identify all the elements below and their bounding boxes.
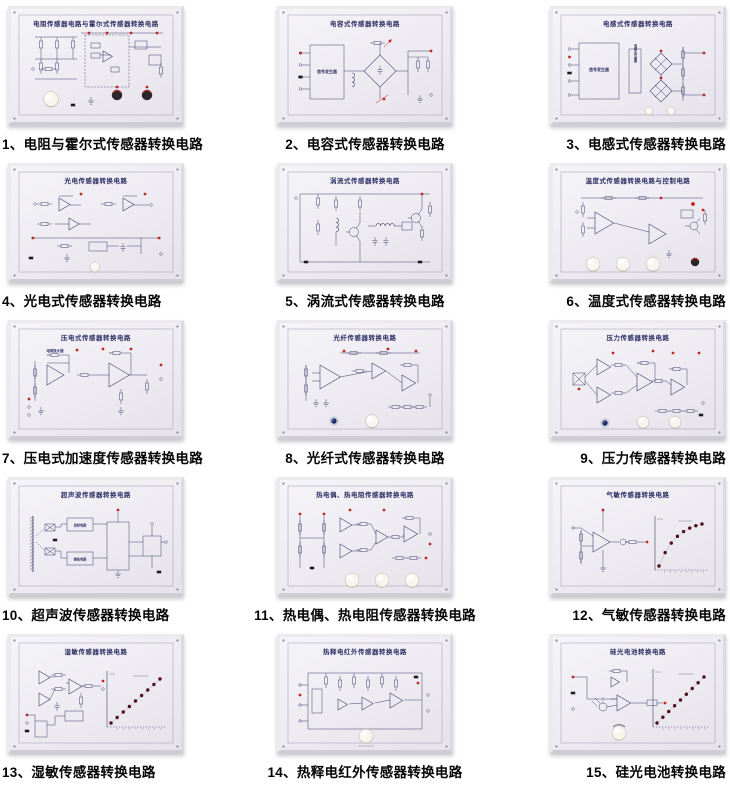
circuit-art: 气敏传感器转换电路 [553,480,723,593]
board-title: 硅光电池转换电路 [610,647,666,656]
circuit-board: 压电式传感器转换电路电荷放大器 [8,320,184,439]
panel-cell-14: 热释电红外传感器转换电路 14、热释电红外传感器转换电路 [243,634,487,791]
panel-caption: 15、硅光电池转换电路 [586,761,726,781]
circuit-art: 光电传感器转换电路 [11,166,181,279]
circuit-board: 硅光电池转换电路 [550,634,726,753]
circuit-board: 温度式传感器转换电路与控制电路 [550,163,726,282]
circuit-art: 硅光电池转换电路 [553,637,723,750]
panel-cell-11: 热电偶、热电阻传感器转换电路 11、热电偶、热电阻传感器转换电路 [243,477,487,634]
board-label: 接收电路 [73,557,88,562]
panel-caption: 5、涡流式传感器转换电路 [285,290,445,310]
panel-caption: 6、温度式传感器转换电路 [566,290,726,310]
panel-caption: 1、电阻与霍尔式传感器转换电路 [2,133,203,153]
board-title: 温度式传感器转换电路与控制电路 [586,176,691,185]
circuit-board: 光电传感器转换电路 [8,163,184,282]
circuit-board: 湿敏传感器转换电路 [8,634,184,753]
panel-cell-8: 光纤传感器转换电路 8、光纤式传感器转换电路 [243,320,487,477]
board-title: 热电偶、热电阻传感器转换电路 [316,490,414,499]
board-title: 光纤传感器转换电路 [333,333,397,342]
circuit-board: 热电偶、热电阻传感器转换电路 [277,477,453,596]
board-label: 发射电路 [73,523,88,528]
circuit-art: 热电偶、热电阻传感器转换电路 [280,480,450,593]
panel-caption: 10、超声波传感器转换电路 [2,604,169,624]
board-label: 信号发生器 [589,66,610,72]
board-title: 电阻传感器电路与霍尔式传感器转换电路 [33,19,159,28]
board-title: 压力传感器转换电路 [607,333,670,342]
circuit-art: 湿敏传感器转换电路 [11,637,181,750]
panel-grid: 电阻传感器电路与霍尔式传感器转换电路 1、电阻与霍尔式传感器转换电路 电容式传感… [0,0,730,791]
circuit-art: 超声波传感器转换电路发射电路接收电路 [11,480,181,593]
board-label: 电感式传感器 [633,42,638,62]
panel-cell-10: 超声波传感器转换电路发射电路接收电路 10、超声波传感器转换电路 [0,477,243,634]
circuit-board: 涡流式传感器转换电路 [277,163,453,282]
circuit-art: 热释电红外传感器转换电路 [280,637,450,750]
panel-caption: 7、压电式加速度传感器转换电路 [2,447,203,467]
panel-cell-9: 压力传感器转换电路 9、压力传感器转换电路 [487,320,730,477]
circuit-art: 电阻传感器电路与霍尔式传感器转换电路 [11,9,181,122]
panel-caption: 12、气敏传感器转换电路 [572,604,726,624]
circuit-art: 光纤传感器转换电路 [280,323,450,436]
board-title: 热释电红外传感器转换电路 [323,647,407,656]
board-title: 超声波传感器转换电路 [61,490,131,499]
circuit-board: 气敏传感器转换电路 [550,477,726,596]
board-title: 气敏传感器转换电路 [606,490,670,499]
circuit-art: 温度式传感器转换电路与控制电路 [553,166,723,279]
circuit-art: 压电式传感器转换电路电荷放大器 [11,323,181,436]
panel-caption: 14、热释电红外传感器转换电路 [267,761,462,781]
circuit-board: 超声波传感器转换电路发射电路接收电路 [8,477,184,596]
panel-caption: 2、电容式传感器转换电路 [285,133,445,153]
panel-cell-5: 涡流式传感器转换电路 5、涡流式传感器转换电路 [243,163,487,320]
board-title: 电感式传感器转换电路 [603,19,673,28]
circuit-board: 电感式传感器转换电路信号发生器电感式传感器 [550,6,726,125]
circuit-board: 电容式传感器转换电路信号发生器 [277,6,453,125]
board-label: 电荷放大器 [47,348,65,353]
panel-caption: 13、湿敏传感器转换电路 [2,761,156,781]
panel-caption: 11、热电偶、热电阻传感器转换电路 [254,604,476,624]
panel-caption: 9、压力传感器转换电路 [580,447,726,467]
panel-cell-2: 电容式传感器转换电路信号发生器 2、电容式传感器转换电路 [243,6,487,163]
board-title: 压电式传感器转换电路 [61,333,131,342]
circuit-art: 压力传感器转换电路 [553,323,723,436]
circuit-art: 涡流式传感器转换电路 [280,166,450,279]
circuit-board: 电阻传感器电路与霍尔式传感器转换电路 [8,6,184,125]
panel-caption: 3、电感式传感器转换电路 [566,133,726,153]
circuit-art: 电感式传感器转换电路信号发生器电感式传感器 [553,9,723,122]
board-title: 涡流式传感器转换电路 [330,176,400,185]
panel-caption: 8、光纤式传感器转换电路 [285,447,445,467]
board-title: 湿敏传感器转换电路 [65,647,128,656]
circuit-board: 热释电红外传感器转换电路 [277,634,453,753]
panel-cell-6: 温度式传感器转换电路与控制电路 6、温度式传感器转换电路 [487,163,730,320]
board-title: 光电传感器转换电路 [64,176,128,185]
circuit-board: 光纤传感器转换电路 [277,320,453,439]
circuit-art: 电容式传感器转换电路信号发生器 [280,9,450,122]
panel-cell-12: 气敏传感器转换电路 12、气敏传感器转换电路 [487,477,730,634]
panel-cell-4: 光电传感器转换电路 4、光电式传感器转换电路 [0,163,243,320]
panel-cell-1: 电阻传感器电路与霍尔式传感器转换电路 1、电阻与霍尔式传感器转换电路 [0,6,243,163]
panel-cell-15: 硅光电池转换电路 15、硅光电池转换电路 [487,634,730,791]
circuit-board: 压力传感器转换电路 [550,320,726,439]
board-label: 信号发生器 [317,68,338,74]
panel-cell-13: 湿敏传感器转换电路 13、湿敏传感器转换电路 [0,634,243,791]
panel-cell-7: 压电式传感器转换电路电荷放大器 7、压电式加速度传感器转换电路 [0,320,243,477]
panel-cell-3: 电感式传感器转换电路信号发生器电感式传感器 3、电感式传感器转换电路 [487,6,730,163]
board-title: 电容式传感器转换电路 [330,19,400,28]
panel-caption: 4、光电式传感器转换电路 [2,290,162,310]
